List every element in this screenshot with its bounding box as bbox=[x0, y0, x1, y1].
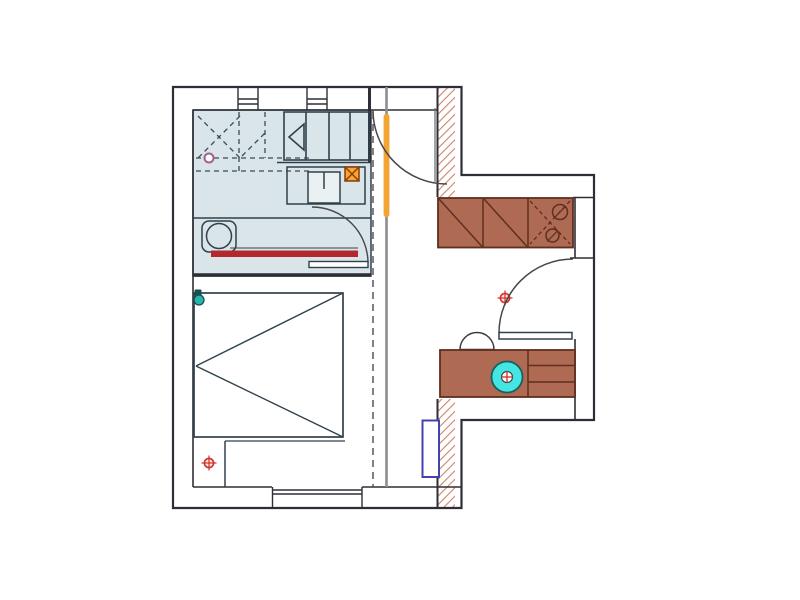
wall-hatch-bottom bbox=[438, 399, 456, 508]
hob-burner-icon bbox=[492, 362, 523, 393]
position-marker-bedroom bbox=[202, 456, 217, 471]
double-bed bbox=[194, 293, 345, 441]
kitchen-room-door-swing bbox=[499, 259, 573, 333]
bed-lamp-icon bbox=[194, 290, 204, 306]
radiator bbox=[423, 421, 440, 478]
kitchen-counter-top bbox=[438, 198, 573, 248]
window-top-right bbox=[307, 87, 327, 110]
bathroom-door-leaf bbox=[309, 262, 368, 268]
sliding-door-track bbox=[384, 114, 390, 217]
towel-radiator bbox=[211, 251, 358, 258]
kitchen-room-door-leaf bbox=[499, 333, 572, 340]
small-round-sink bbox=[460, 333, 494, 350]
shower-drain bbox=[205, 154, 214, 163]
window-top-left bbox=[238, 87, 258, 110]
wall-hatch-top bbox=[438, 87, 456, 197]
window-bottom bbox=[273, 487, 363, 508]
floor-plan-canvas: Floor plan of a small apartment: bathroo… bbox=[0, 0, 800, 600]
electrical-box-icon bbox=[345, 167, 359, 181]
kitchen-counter-lower bbox=[440, 350, 575, 397]
